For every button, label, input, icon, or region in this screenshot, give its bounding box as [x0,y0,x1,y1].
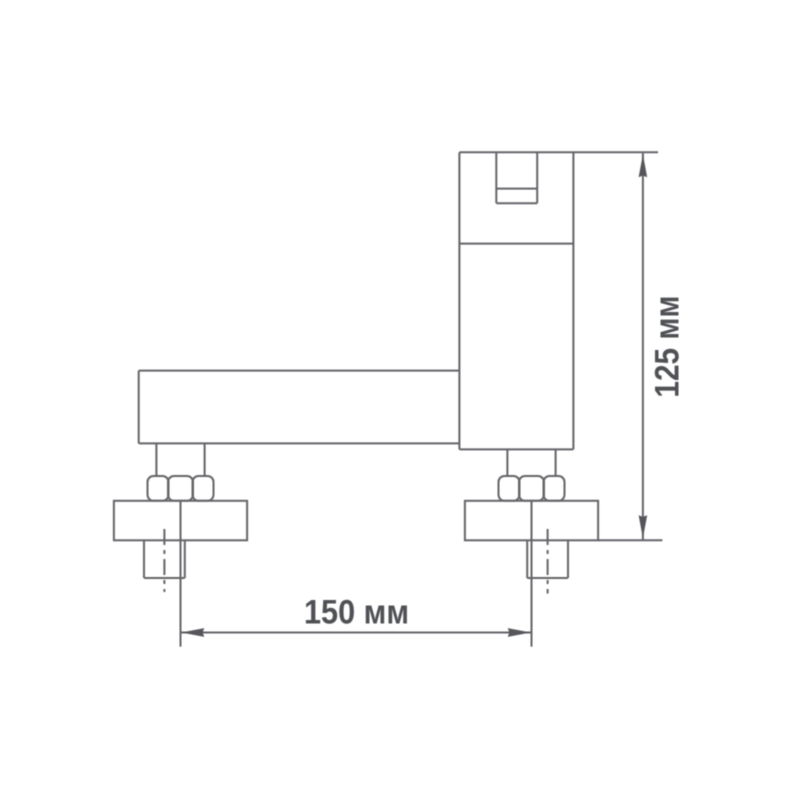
svg-text:125 мм: 125 мм [649,296,687,398]
svg-text:150 мм: 150 мм [304,593,409,631]
